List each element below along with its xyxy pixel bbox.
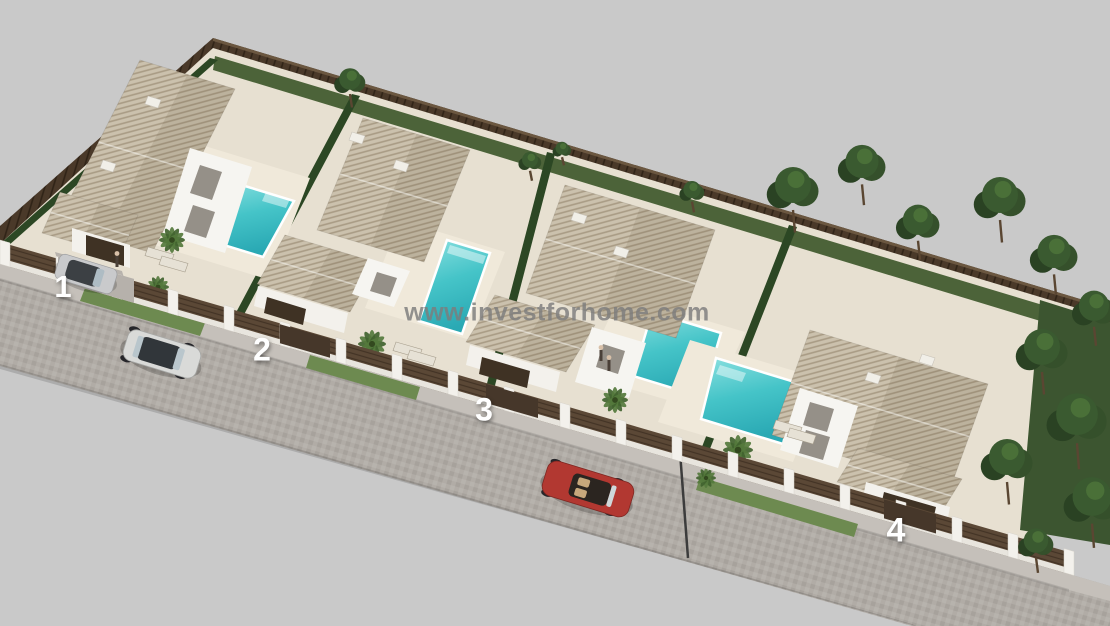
watermark: www.investforhome.com <box>404 299 709 328</box>
plot-number-2: 2 <box>253 332 271 369</box>
aerial-render-image: www.investforhome.com 1 2 3 4 <box>0 0 1110 626</box>
plot-number-3: 3 <box>475 392 493 429</box>
plot-number-4: 4 <box>887 512 906 551</box>
plot-number-1: 1 <box>54 269 71 305</box>
